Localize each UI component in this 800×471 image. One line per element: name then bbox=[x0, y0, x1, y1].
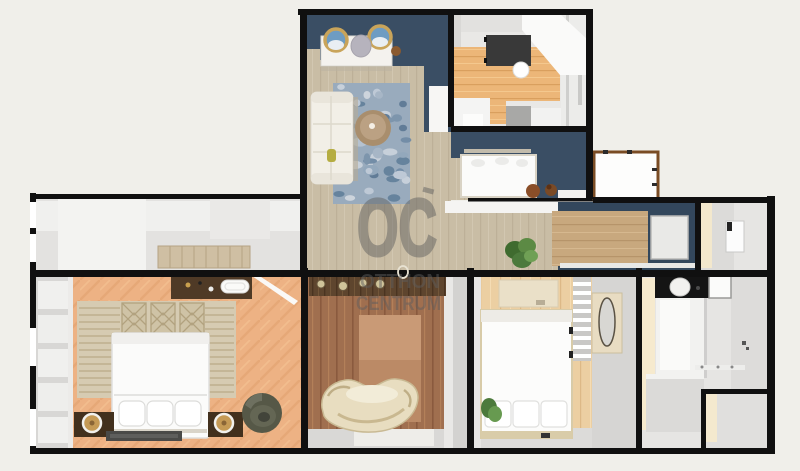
svg-text:CENTRUM: CENTRUM bbox=[356, 292, 441, 315]
svg-text:OTTHON: OTTHON bbox=[360, 270, 440, 293]
svg-text:OC: OC bbox=[357, 183, 437, 273]
